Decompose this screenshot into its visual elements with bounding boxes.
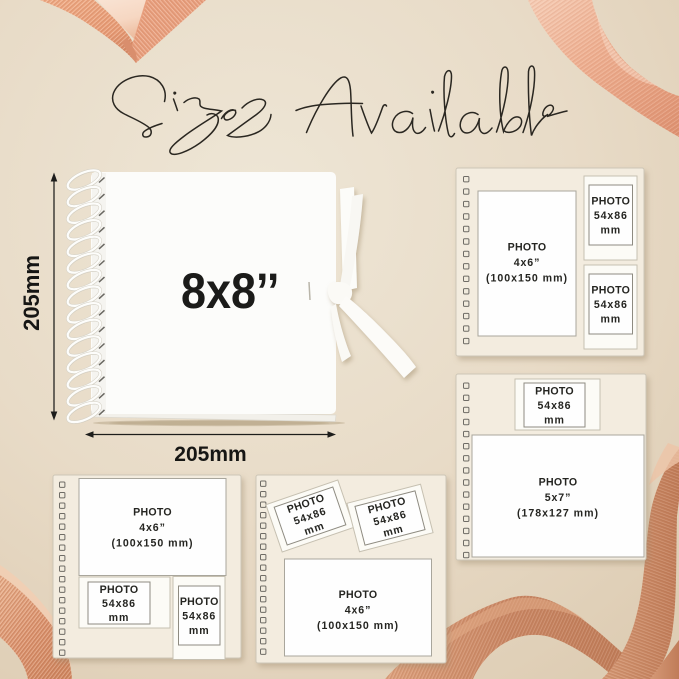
svg-text:4x6”: 4x6” xyxy=(345,605,372,617)
svg-text:mm: mm xyxy=(600,314,621,326)
svg-text:mm: mm xyxy=(109,612,130,624)
svg-text:54x86: 54x86 xyxy=(594,299,628,311)
svg-text:PHOTO: PHOTO xyxy=(133,507,172,519)
svg-text:PHOTO: PHOTO xyxy=(591,196,630,208)
svg-text:205mm: 205mm xyxy=(174,443,246,466)
svg-text:54x86: 54x86 xyxy=(102,598,136,610)
svg-text:4x6”: 4x6” xyxy=(514,257,541,269)
svg-text:PHOTO: PHOTO xyxy=(535,386,574,398)
svg-text:PHOTO: PHOTO xyxy=(539,477,578,489)
svg-text:mm: mm xyxy=(600,225,621,237)
svg-text:PHOTO: PHOTO xyxy=(508,242,547,254)
svg-text:4x6”: 4x6” xyxy=(139,522,166,534)
svg-text:(100x150 mm): (100x150 mm) xyxy=(111,537,193,549)
svg-text:(178x127 mm): (178x127 mm) xyxy=(517,507,599,519)
svg-text:(100x150 mm): (100x150 mm) xyxy=(486,272,568,284)
svg-text:PHOTO: PHOTO xyxy=(180,596,219,608)
svg-text:PHOTO: PHOTO xyxy=(591,285,630,297)
svg-text:54x86: 54x86 xyxy=(594,210,628,222)
svg-text:mm: mm xyxy=(544,415,565,427)
svg-text:54x86: 54x86 xyxy=(538,400,572,412)
svg-text:205mm: 205mm xyxy=(19,255,44,331)
svg-text:mm: mm xyxy=(189,625,210,637)
svg-text:54x86: 54x86 xyxy=(182,611,216,623)
svg-text:8x8’’: 8x8’’ xyxy=(181,264,279,320)
svg-text:PHOTO: PHOTO xyxy=(100,584,139,596)
svg-text:5x7”: 5x7” xyxy=(545,492,572,504)
svg-text:(100x150 mm): (100x150 mm) xyxy=(317,620,399,632)
svg-text:PHOTO: PHOTO xyxy=(339,589,378,601)
